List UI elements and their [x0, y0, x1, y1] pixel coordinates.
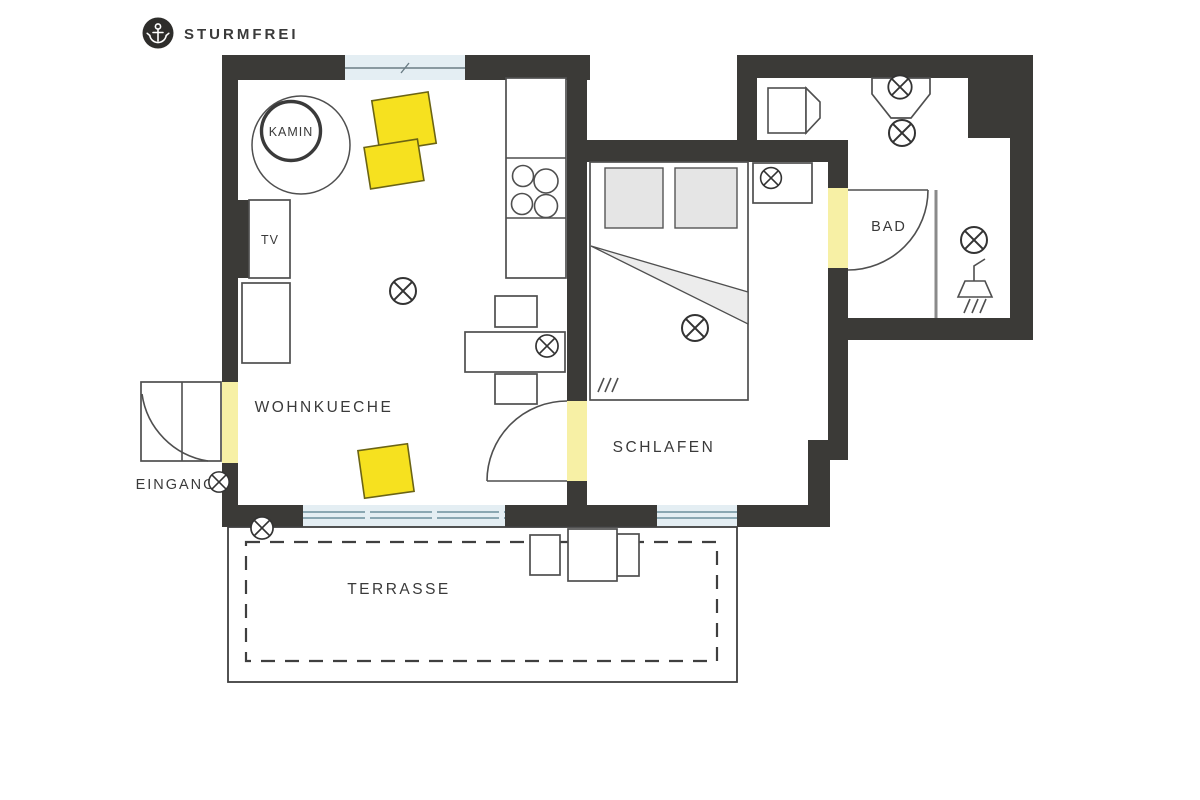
- ceiling-light-icon: [888, 75, 911, 98]
- kamin-fireplace: KAMIN: [252, 96, 350, 194]
- window-living-south: [303, 505, 505, 527]
- ceiling-light-icon: [682, 315, 708, 341]
- floorplan-page: STURMFREI: [0, 0, 1200, 800]
- ceiling-light-icon: [209, 472, 229, 492]
- bed: [590, 162, 748, 400]
- tv-unit: TV: [238, 200, 290, 278]
- window-bedroom-south: [657, 505, 737, 527]
- wohnkueche-label: WOHNKUECHE: [255, 399, 394, 416]
- dining-chair-bottom: [495, 374, 537, 404]
- terrace-dashed-border: [246, 542, 717, 661]
- bad-label: BAD: [871, 219, 907, 235]
- dining-chair-top: [495, 296, 537, 327]
- bedroom-door-opening: [567, 401, 587, 481]
- terrace: TERRASSE: [228, 527, 737, 682]
- shower-head-icon: [958, 259, 992, 313]
- terrace-table: [568, 529, 617, 581]
- terrace-chair-right: [617, 534, 639, 576]
- toilet: [768, 88, 820, 133]
- floorplan-svg: STURMFREI: [0, 0, 1200, 800]
- bathroom-door-opening: [828, 188, 848, 268]
- kamin-label: KAMIN: [269, 125, 314, 139]
- terrasse-label: TERRASSE: [347, 581, 451, 598]
- entrance-door: [141, 382, 221, 461]
- window-top: [345, 55, 465, 80]
- ceiling-light-icon: [761, 168, 782, 189]
- eingang-label: EINGANG: [136, 477, 217, 493]
- ceiling-light-icon: [536, 335, 558, 357]
- brand-logo: STURMFREI: [143, 18, 299, 49]
- pillow-right: [675, 168, 737, 228]
- entrance-door-opening: [222, 382, 238, 463]
- terrace-chair-left: [530, 535, 560, 575]
- bedroom-door: [487, 401, 567, 481]
- pillow-left: [605, 168, 663, 228]
- schlafen-label: SCHLAFEN: [613, 439, 716, 456]
- kitchen-counter: [506, 78, 566, 278]
- brand-name: STURMFREI: [184, 26, 299, 43]
- ceiling-light-icon: [390, 278, 416, 304]
- armchair: [358, 444, 414, 498]
- tv-label: TV: [261, 233, 279, 247]
- ceiling-light-icon: [251, 517, 273, 539]
- sofa-seat-2: [364, 139, 424, 189]
- sideboard: [242, 283, 290, 363]
- ceiling-light-icon: [961, 227, 987, 253]
- ceiling-light-icon: [889, 120, 915, 146]
